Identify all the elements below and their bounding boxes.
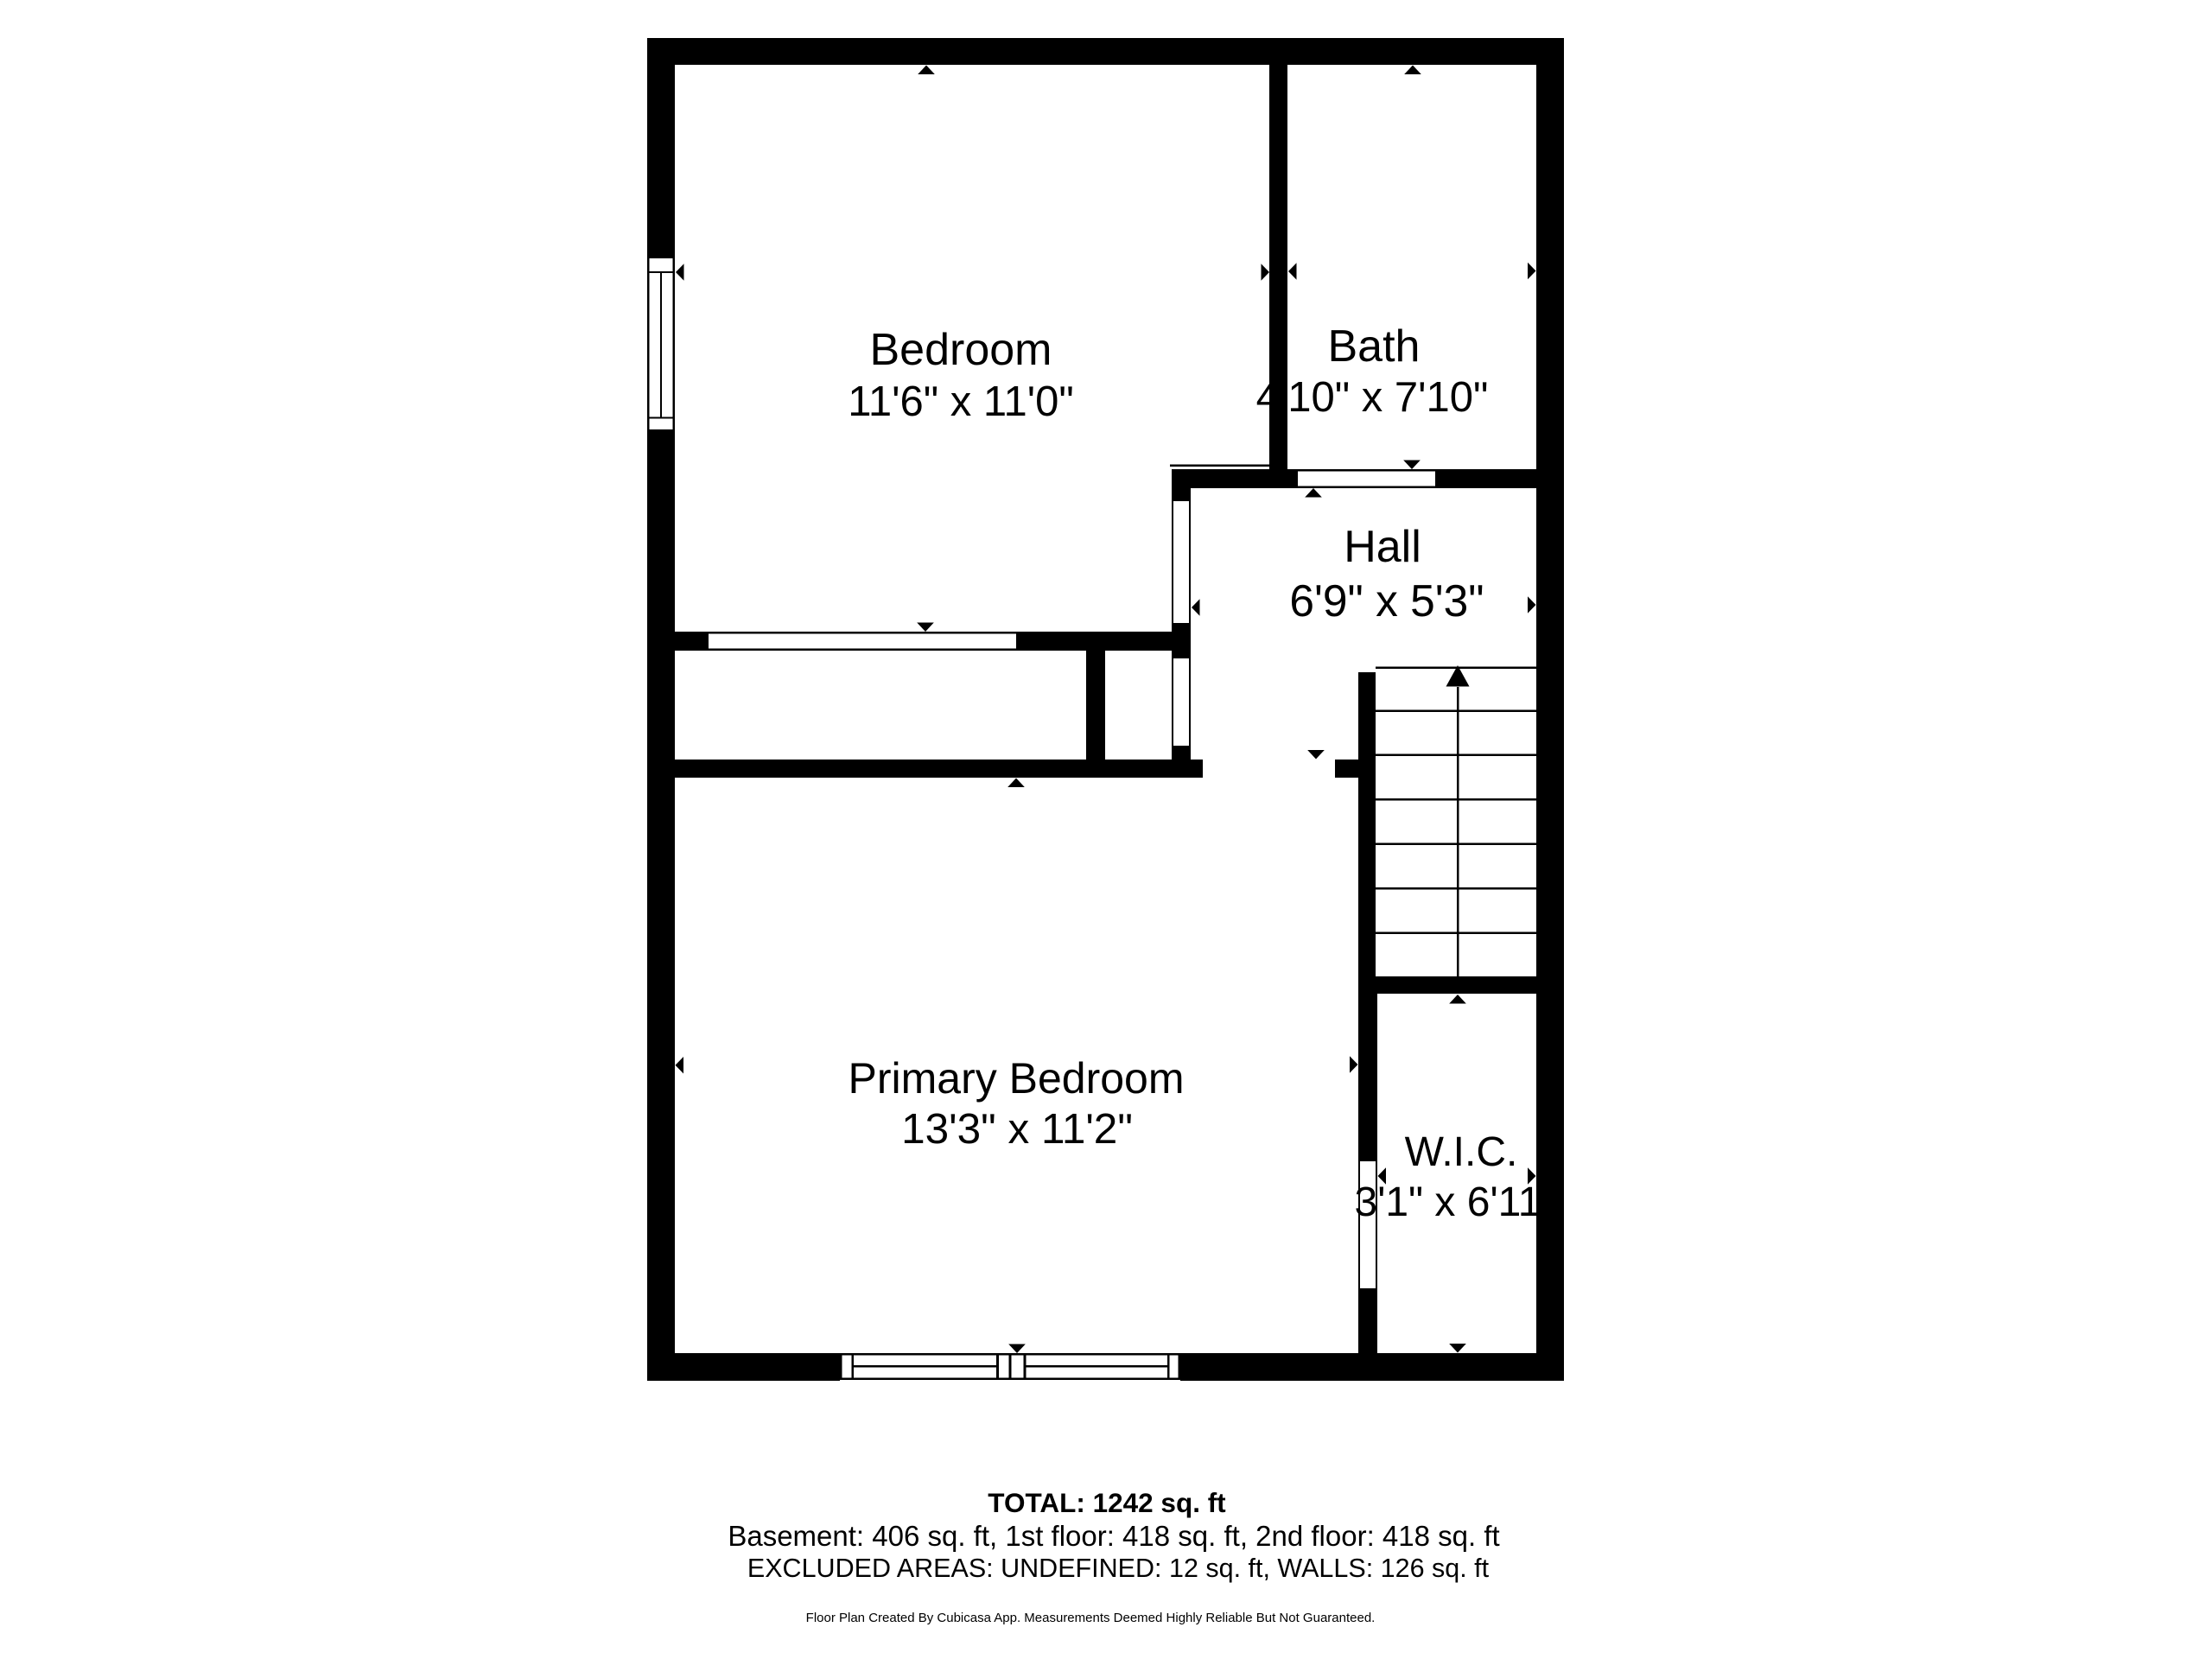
svg-text:4'10" x 7'10": 4'10" x 7'10" bbox=[1256, 374, 1489, 421]
svg-text:Hall: Hall bbox=[1344, 522, 1421, 572]
svg-text:Bath: Bath bbox=[1328, 321, 1421, 372]
svg-text:EXCLUDED AREAS: UNDEFINED: 12: EXCLUDED AREAS: UNDEFINED: 12 sq. ft, WA… bbox=[747, 1554, 1490, 1583]
svg-text:11'6" x 11'0": 11'6" x 11'0" bbox=[848, 378, 1073, 425]
svg-text:Floor Plan Created By Cubicasa: Floor Plan Created By Cubicasa App. Meas… bbox=[806, 1611, 1376, 1625]
svg-text:Primary Bedroom: Primary Bedroom bbox=[849, 1054, 1185, 1103]
svg-text:13'3" x 11'2": 13'3" x 11'2" bbox=[901, 1105, 1133, 1153]
svg-text:Basement: 406 sq. ft, 1st floo: Basement: 406 sq. ft, 1st floor: 418 sq.… bbox=[728, 1520, 1499, 1552]
svg-text:3'1" x 6'11": 3'1" x 6'11" bbox=[1355, 1179, 1556, 1225]
svg-text:TOTAL: 1242 sq. ft: TOTAL: 1242 sq. ft bbox=[988, 1487, 1226, 1518]
svg-text:Bedroom: Bedroom bbox=[870, 325, 1052, 375]
svg-text:W.I.C.: W.I.C. bbox=[1405, 1129, 1518, 1175]
svg-text:6'9" x 5'3": 6'9" x 5'3" bbox=[1289, 575, 1484, 626]
